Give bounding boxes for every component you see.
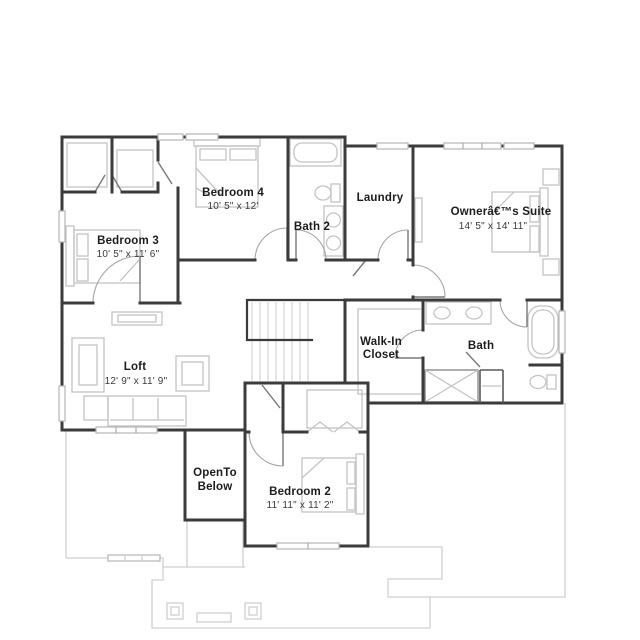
bedroom2-label: Bedroom 2 [269, 486, 331, 498]
staircase [247, 300, 347, 381]
bath2-door [296, 230, 326, 260]
nightstand [543, 169, 559, 185]
owners-suite-dims: 14' 5" x 14' 11" [459, 221, 528, 232]
window [186, 134, 218, 140]
bath-tub [528, 306, 558, 358]
window [59, 386, 65, 421]
bedroom3-dims: 10' 5" x 11' 6" [97, 249, 160, 260]
window [559, 311, 565, 353]
loft-accent-chair [176, 356, 209, 391]
bedroom4-door [255, 228, 287, 260]
bath2-tub [290, 139, 341, 166]
loft-tv-console [112, 312, 162, 325]
dresser [415, 198, 422, 242]
hall-closet-door [353, 260, 366, 276]
bedroom3-label: Bedroom 3 [97, 235, 159, 247]
loft-side-table [84, 396, 108, 420]
loft-label: Loft [124, 361, 147, 373]
closet-shelf [67, 143, 107, 187]
bedroom4-dims: 10' 5" x 12' [208, 201, 259, 212]
stair-railing [247, 300, 347, 340]
bath2-toilet [315, 184, 340, 202]
bath-shower [425, 370, 478, 402]
interior-walls [62, 137, 562, 432]
loft-dims: 12' 9" x 11' 9" [105, 376, 168, 387]
window [96, 427, 157, 433]
lower-floor-outline [66, 403, 565, 628]
bedroom4-closet-door [158, 162, 172, 184]
floor-plan-svg: Bedroom 4 10' 5" x 12' Bedroom 3 10' 5" … [0, 0, 640, 640]
hall-door [262, 385, 280, 408]
open-to-below-label-line1: OpenTo [193, 467, 237, 479]
window [444, 143, 501, 149]
stair-treads [252, 302, 308, 381]
bath-label: Bath [468, 340, 494, 352]
bedroom2-closet-doors [307, 422, 360, 432]
window [377, 143, 408, 149]
owners-suite-door [413, 265, 445, 297]
bedroom2-door [249, 432, 283, 466]
closet-shelf [117, 150, 153, 187]
bedroom2-closet-shelf [307, 390, 362, 428]
window [158, 134, 183, 140]
lower-window [108, 555, 160, 561]
bath-toilet [530, 375, 556, 389]
window [504, 143, 534, 149]
loft-sofa [108, 396, 186, 426]
bedroom4-label: Bedroom 4 [202, 187, 264, 199]
open-to-below-label-line2: Below [198, 481, 233, 493]
nightstand [543, 259, 559, 275]
floor-plan-page: Bedroom 4 10' 5" x 12' Bedroom 3 10' 5" … [0, 0, 640, 640]
water-closet-door [466, 352, 480, 367]
owners-suite-label: Ownerâ€™s Suite [451, 206, 552, 218]
bath2-label: Bath 2 [294, 221, 330, 233]
loft-armchair [72, 338, 104, 392]
closet-double-doors [95, 175, 122, 192]
bedroom2-dims: 11' 11" x 11' 2" [267, 500, 334, 511]
walkin-closet-label-line1: Walk-In [360, 336, 402, 348]
laundry-label: Laundry [357, 192, 404, 204]
laundry-door [378, 230, 408, 260]
porch-posts [167, 603, 261, 622]
bedroom3-door [93, 256, 140, 303]
walkin-closet-label-line2: Closet [363, 349, 399, 361]
bath-vanity [426, 302, 491, 324]
window [59, 211, 65, 242]
furniture [66, 138, 559, 514]
bath-door [500, 300, 527, 327]
